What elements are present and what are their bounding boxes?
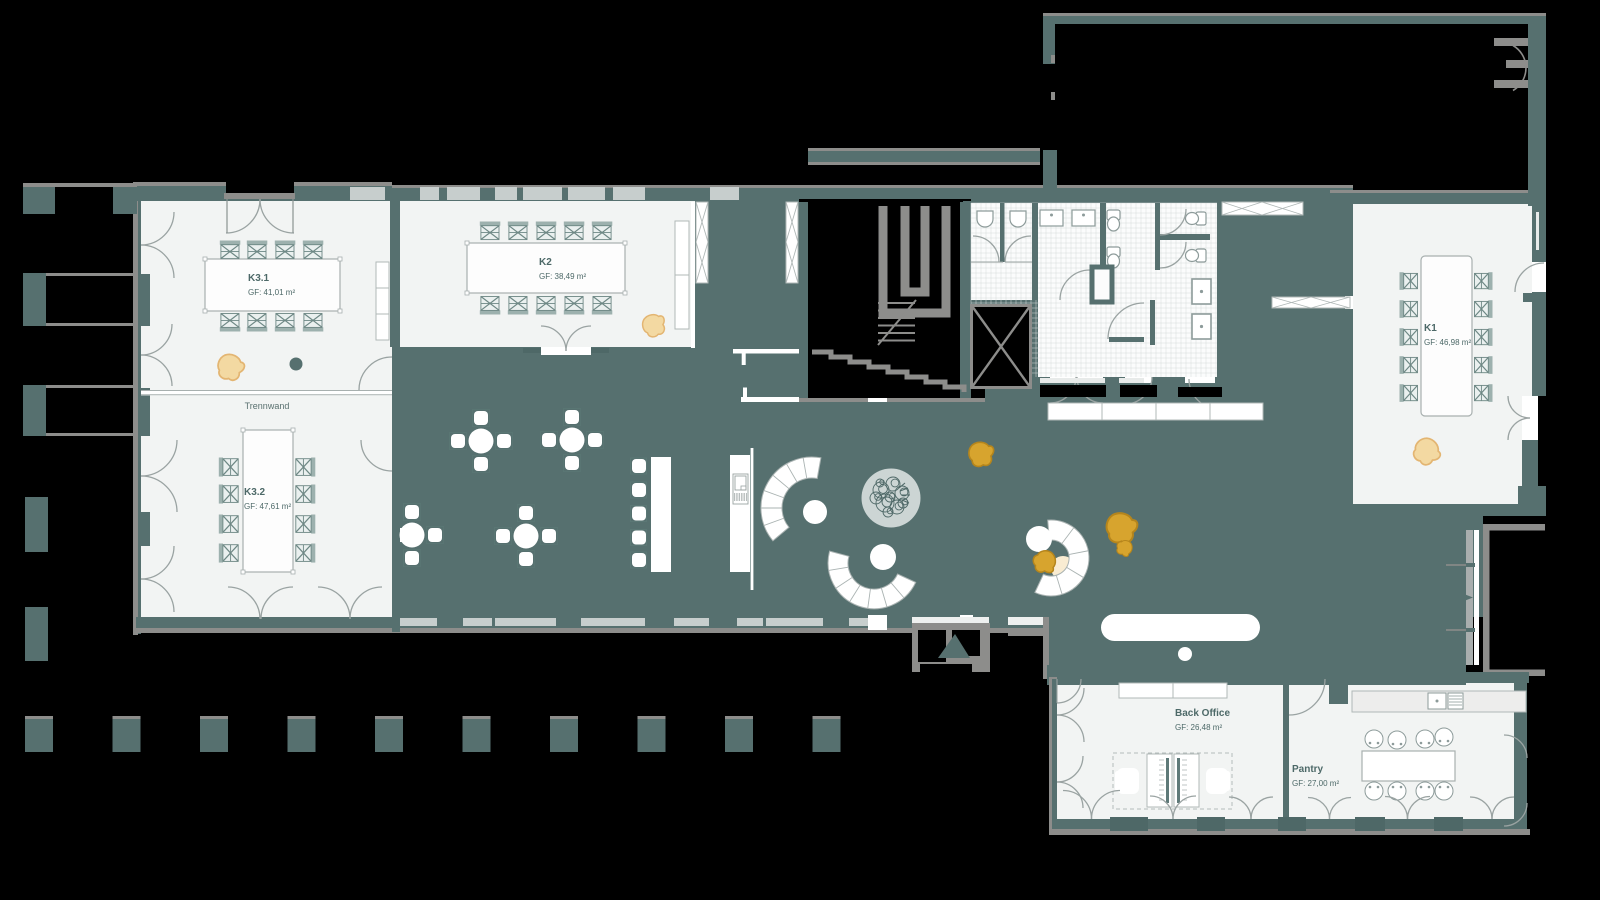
svg-text:GF: 27,00 m²: GF: 27,00 m² — [1292, 779, 1339, 788]
svg-text:K3.2: K3.2 — [244, 487, 266, 498]
svg-text:GF: 38,49 m²: GF: 38,49 m² — [539, 272, 586, 281]
svg-text:GF: 41,01 m²: GF: 41,01 m² — [248, 288, 295, 297]
svg-text:GF: 47,61 m²: GF: 47,61 m² — [244, 502, 291, 511]
svg-text:GF: 26,48 m²: GF: 26,48 m² — [1175, 723, 1222, 732]
svg-text:K2: K2 — [539, 257, 552, 268]
svg-text:K1: K1 — [1424, 323, 1437, 334]
svg-text:K3.1: K3.1 — [248, 273, 270, 284]
svg-text:GF: 46,98 m²: GF: 46,98 m² — [1424, 338, 1471, 347]
svg-text:Pantry: Pantry — [1292, 764, 1324, 775]
svg-text:Trennwand: Trennwand — [245, 401, 290, 411]
svg-text:Back Office: Back Office — [1175, 708, 1230, 719]
